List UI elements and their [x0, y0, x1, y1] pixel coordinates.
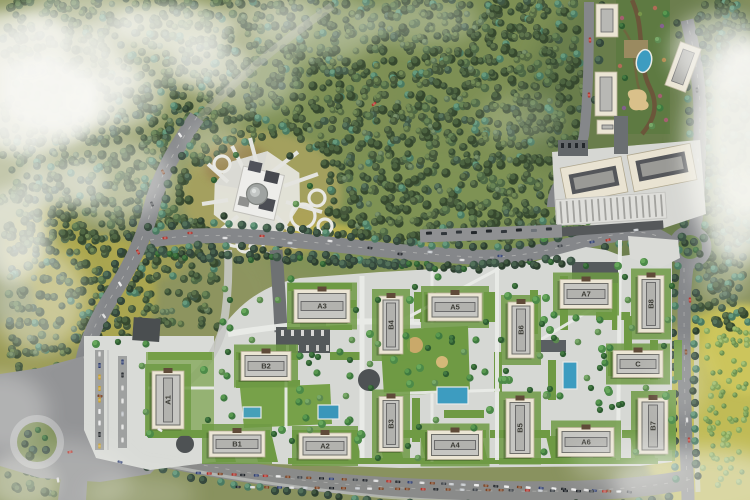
svg-text:B1: B1 [232, 440, 242, 449]
svg-text:A4: A4 [450, 441, 460, 450]
svg-text:B8: B8 [647, 299, 656, 309]
svg-text:A5: A5 [450, 303, 460, 312]
svg-text:A7: A7 [581, 290, 591, 299]
svg-text:A1: A1 [164, 395, 173, 405]
svg-text:A3: A3 [317, 302, 327, 311]
svg-text:B4: B4 [387, 319, 396, 329]
svg-text:A2: A2 [320, 442, 330, 451]
svg-text:B6: B6 [517, 325, 526, 335]
svg-text:B3: B3 [387, 419, 396, 429]
svg-text:B7: B7 [649, 421, 658, 431]
svg-text:C: C [635, 360, 641, 369]
svg-text:B2: B2 [261, 362, 271, 371]
svg-text:B5: B5 [516, 423, 525, 433]
